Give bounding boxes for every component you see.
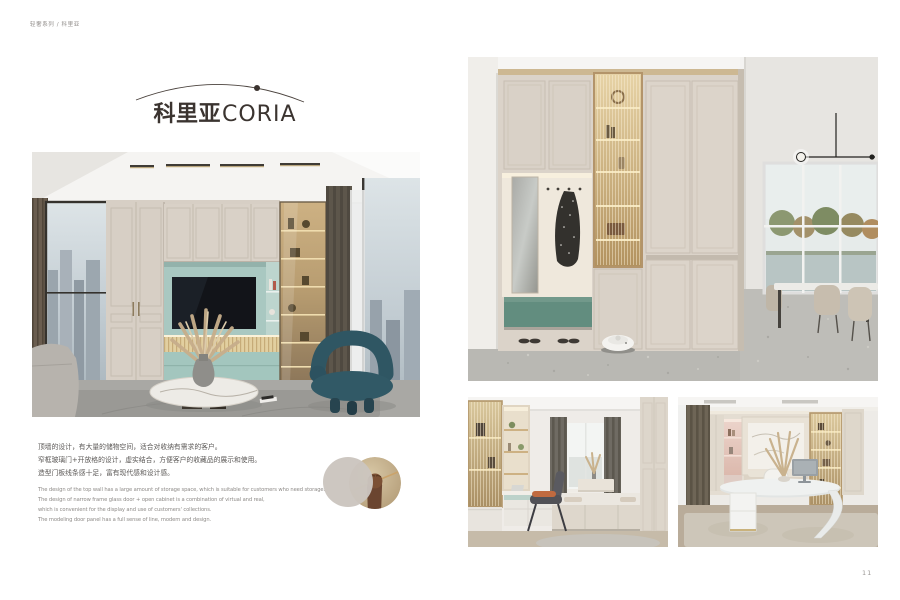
- sofa: [32, 344, 79, 417]
- catalog-spread: 轻奢系列 / 科里亚 科里亚CORIA: [0, 0, 900, 600]
- home-office-illustration: [678, 397, 878, 547]
- right-cabinet: [640, 397, 668, 539]
- series-title: 科里亚CORIA: [130, 96, 320, 128]
- entry-cabinet: [498, 69, 744, 351]
- series-title-en: CORIA: [222, 102, 297, 127]
- page-number: 11: [862, 569, 872, 577]
- desc-en-line: The modeling door panel has a full sense…: [38, 515, 325, 525]
- photo-study-room: [468, 397, 668, 547]
- series-title-cn: 科里亚: [153, 102, 221, 127]
- description-cn: 顶墙的设计，有大量的储物空间，适合对收纳有需求的客户。 窄框玻璃门+开放格的设计…: [38, 441, 261, 480]
- description-en: The design of the top wall has a large a…: [38, 485, 325, 525]
- breadcrumb: 轻奢系列 / 科里亚: [30, 20, 80, 28]
- photo-home-office: [678, 397, 878, 547]
- desc-cn-line: 窄框玻璃门+开放格的设计，虚实结合，方便客户的收藏品的展示和使用。: [38, 454, 261, 467]
- circle-decoration: [318, 452, 408, 514]
- desc-en-line: The design of the top wall has a large a…: [38, 485, 325, 495]
- robot-vacuum: [601, 335, 635, 354]
- tall-doors: [646, 81, 738, 349]
- right-window-curtains: [326, 178, 420, 404]
- bench: [504, 297, 592, 330]
- desc-cn-line: 造型门板线条感十足，富有现代感和设计感。: [38, 467, 261, 480]
- tv-niche: [164, 262, 280, 380]
- living-room-illustration: [32, 152, 420, 417]
- entryway-illustration: [468, 57, 878, 381]
- glass-cabinet: [468, 401, 502, 539]
- rug: [684, 513, 878, 547]
- series-title-block: 科里亚CORIA: [130, 64, 320, 130]
- dining-window: [764, 163, 878, 293]
- desc-en-line: which is convenient for the display and …: [38, 505, 325, 515]
- study-room-illustration: [468, 397, 668, 547]
- desc-cn-line: 顶墙的设计，有大量的储物空间，适合对收纳有需求的客户。: [38, 441, 261, 454]
- wood-shelves: [502, 405, 530, 491]
- photo-living-room: [32, 152, 420, 417]
- desc-en-line: The design of narrow frame glass door + …: [38, 495, 325, 505]
- arc-dot-icon: [254, 85, 260, 91]
- beige-circle: [323, 457, 373, 507]
- glass-display-column: [594, 73, 642, 267]
- photo-entryway: [468, 57, 878, 381]
